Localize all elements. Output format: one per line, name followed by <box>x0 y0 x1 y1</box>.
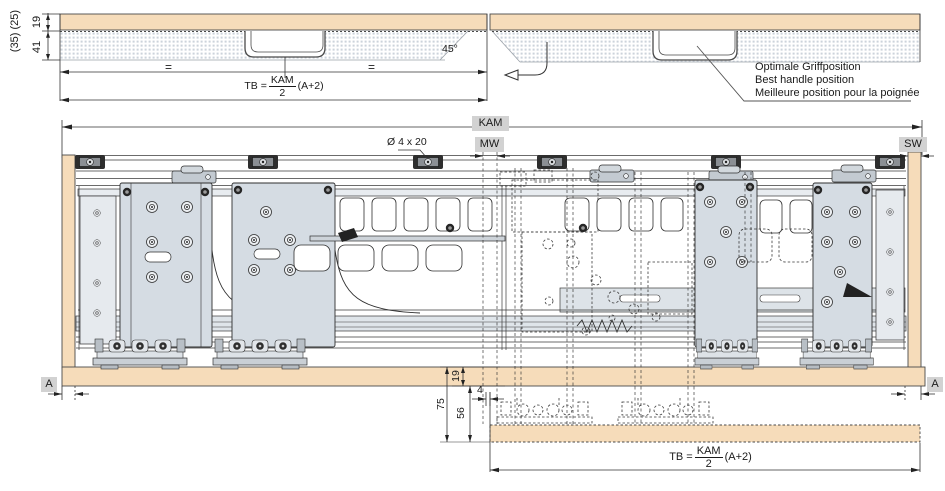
phantom-bottom-panel <box>490 425 920 442</box>
formula-fraction: KAM 2 <box>695 446 723 469</box>
equal-mark-right: = <box>368 61 375 73</box>
mw-dimension <box>470 154 510 158</box>
formula-denominator: 2 <box>706 458 712 469</box>
dim-4-label: 4 <box>477 384 483 396</box>
handle-note-en: Best handle position <box>755 74 920 87</box>
dim-75-label: 75 <box>435 364 447 444</box>
handle-note-de: Optimale Griffposition <box>755 61 920 74</box>
formula-factor: (A+2) <box>725 452 752 463</box>
formula-factor: (A+2) <box>298 81 324 92</box>
dim-overall-label: (35) (25) <box>9 0 21 71</box>
technical-drawing-sheet: (35) (25) 19 41 = = 45° TB = KAM 2 (A+2)… <box>0 0 945 491</box>
tb-formula-top: TB = KAM 2 (A+2) <box>228 75 340 98</box>
left-side-wall <box>62 155 75 368</box>
dim-19-label: 19 <box>450 336 462 416</box>
handle-recess-left <box>245 31 325 57</box>
phantom-bottom-guides <box>497 398 713 423</box>
screw-callout-label: Ø 4 x 20 <box>387 136 427 148</box>
formula-lhs: TB = <box>669 452 693 463</box>
sw-label: SW <box>899 137 927 152</box>
handle-recess-right <box>653 31 737 60</box>
assembly-drawing <box>48 120 935 472</box>
kam-label: KAM <box>472 116 509 131</box>
tb-formula-bottom: TB = KAM 2 (A+2) <box>648 446 773 469</box>
formula-numerator: KAM <box>269 75 296 87</box>
handle-note-fr: Meilleure position pour la poignée <box>755 87 920 100</box>
formula-numerator: KAM <box>695 446 723 458</box>
right-side-wall <box>908 152 921 368</box>
angle-label: 45° <box>442 43 458 55</box>
mw-label: MW <box>475 137 504 152</box>
bottom-panel <box>62 367 925 386</box>
gap-label-left: A <box>41 377 57 392</box>
equal-mark-left: = <box>165 61 172 73</box>
formula-fraction: KAM 2 <box>269 75 296 98</box>
gap-label-right: A <box>927 377 943 392</box>
formula-lhs: TB = <box>244 81 266 92</box>
dim-board-label: 41 <box>31 7 43 87</box>
formula-denominator: 2 <box>279 87 285 98</box>
handle-note: Optimale Griffposition Best handle posit… <box>755 61 920 100</box>
